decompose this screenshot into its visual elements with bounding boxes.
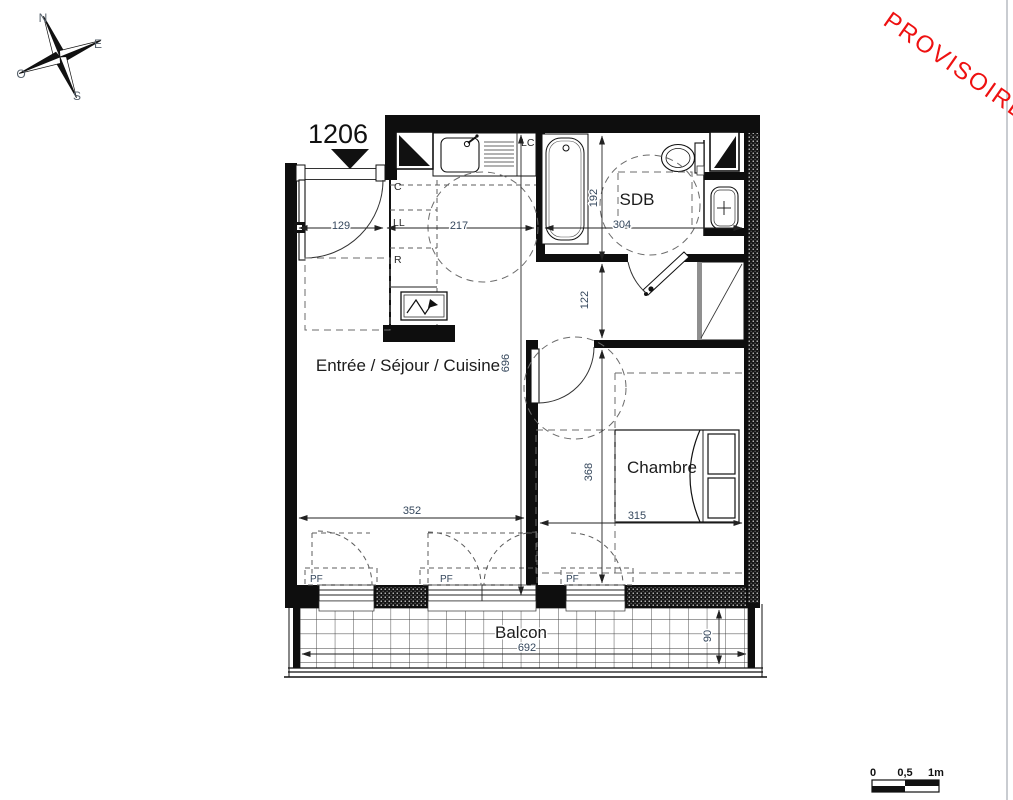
compass-south: S [73,89,81,103]
dim-living-depth: 696 [500,354,512,372]
dim-bedroom-depth: 368 [583,463,595,481]
scale-zero: 0 [870,767,876,779]
bathroom-label: SDB [620,190,655,209]
dim-balcony-depth: 90 [702,630,714,642]
closet-strip: C LL R [390,180,447,325]
entrance-marker-icon [331,149,369,169]
window-label-bedroom: PF [566,574,579,585]
bathtub [542,134,588,244]
bathroom-door [628,252,689,296]
kitchen-sink [441,134,479,172]
window-living-left [319,585,374,611]
pillow [708,434,735,474]
pillow [708,478,735,518]
compass-north: N [39,11,48,25]
closet-label: C [394,181,402,193]
scale-half: 0,5 [897,767,912,779]
washbasin [711,187,738,229]
bedroom-door [531,347,594,403]
wardrobe [697,262,744,340]
window-swings [305,531,633,585]
dim-kitchen-width: 217 [450,220,468,232]
scale-bar: 0 0,5 1m [870,767,944,792]
fridge-label: R [394,254,402,266]
windows [305,531,633,611]
dim-hallway-depth: 122 [579,291,591,309]
bedroom-label: Chambre [627,458,697,477]
kitchen-unit-label: LC [521,137,535,149]
unit-number: 1206 [308,119,368,149]
dim-bathroom-width: 304 [613,219,631,231]
floor-plan-drawing: LC C LL R [0,0,1013,800]
dim-bathroom-depth: 192 [588,189,600,207]
dim-living-width: 352 [403,505,421,517]
compass-east: E [94,37,102,51]
window-living-right [428,585,536,611]
washing-machine-label: LL [393,217,405,229]
dim-balcony-width: 692 [518,642,536,654]
balcony-label: Balcon [495,623,547,642]
dim-bedroom-width: 315 [628,510,646,522]
compass-rose-icon: N E O S [3,0,118,114]
window-bedroom [566,585,625,611]
window-label-living-left: PF [310,574,323,585]
living-room-label: Entrée / Séjour / Cuisine [316,356,500,375]
electrical-panel [401,292,447,320]
duct-kitchen [396,132,433,169]
provisional-stamp: PROVISOIRE [879,7,1013,126]
scale-one: 1m [928,767,944,779]
unit-label: 1206 [308,119,369,169]
floor-plan-page: LC C LL R [0,0,1013,800]
compass-west: O [16,67,25,81]
duct-bathroom [710,132,739,171]
dim-entry-width: 129 [332,220,350,232]
toilet [662,143,705,175]
entry-door [294,165,385,260]
window-label-living-right: PF [440,574,453,585]
